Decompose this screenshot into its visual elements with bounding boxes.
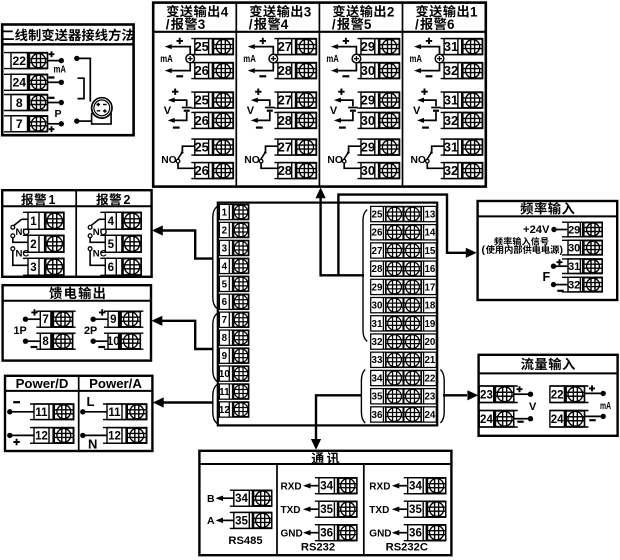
svg-text:mA: mA: [410, 54, 423, 65]
svg-text:4: 4: [281, 17, 289, 32]
svg-text:11: 11: [219, 387, 230, 398]
svg-text:8: 8: [16, 96, 23, 110]
svg-text:RS232: RS232: [301, 542, 335, 554]
svg-text:9: 9: [110, 314, 116, 326]
svg-text:3: 3: [222, 243, 228, 254]
svg-text:TXD: TXD: [281, 505, 301, 516]
svg-text:1: 1: [470, 4, 478, 19]
svg-text:25: 25: [194, 93, 208, 108]
svg-text:24: 24: [424, 410, 435, 421]
svg-text:4: 4: [222, 261, 228, 272]
svg-text:25: 25: [194, 39, 208, 54]
svg-text:35: 35: [409, 504, 422, 516]
svg-text:26: 26: [194, 113, 208, 128]
svg-text:7: 7: [42, 314, 48, 326]
svg-text:21: 21: [424, 355, 435, 366]
svg-text:23: 23: [424, 392, 435, 403]
svg-text:36: 36: [320, 528, 333, 540]
svg-text:13: 13: [424, 209, 435, 220]
svg-text:/: /: [166, 17, 170, 32]
svg-text:Power/A: Power/A: [89, 376, 142, 391]
svg-text:/: /: [415, 17, 419, 32]
svg-text:27: 27: [278, 93, 292, 108]
svg-text:GND: GND: [281, 529, 303, 540]
svg-text:22: 22: [551, 389, 564, 401]
svg-text:6: 6: [222, 297, 228, 308]
svg-text:/: /: [332, 17, 336, 32]
svg-text:35: 35: [372, 392, 383, 403]
svg-text:30: 30: [361, 63, 375, 78]
svg-text:12: 12: [219, 405, 230, 416]
svg-text:34: 34: [320, 481, 333, 493]
svg-text:28: 28: [278, 63, 292, 78]
svg-text:2: 2: [124, 193, 131, 207]
svg-text:1: 1: [30, 216, 37, 228]
svg-text:L: L: [87, 394, 95, 409]
svg-text:34: 34: [409, 481, 422, 493]
svg-text:26: 26: [194, 63, 208, 78]
svg-text:V: V: [164, 105, 172, 117]
svg-text:10: 10: [219, 369, 230, 380]
svg-text:5: 5: [222, 279, 228, 290]
svg-text:(: (: [482, 244, 486, 256]
svg-text:32: 32: [444, 163, 458, 178]
svg-text:RS485: RS485: [228, 535, 262, 547]
svg-text:mA: mA: [600, 401, 611, 412]
svg-text:27: 27: [278, 140, 292, 155]
svg-text:12: 12: [108, 430, 121, 442]
svg-text:30: 30: [372, 301, 383, 312]
svg-text:28: 28: [372, 264, 383, 275]
svg-text:31: 31: [568, 261, 580, 273]
svg-text:V: V: [330, 105, 338, 117]
svg-text:27: 27: [372, 246, 383, 257]
svg-text:18: 18: [424, 301, 435, 312]
svg-text:NO: NO: [411, 155, 426, 166]
svg-text:5: 5: [364, 17, 372, 32]
svg-text:14: 14: [424, 228, 435, 239]
svg-text:25: 25: [194, 140, 208, 155]
svg-text:NC: NC: [16, 249, 30, 260]
svg-text:24: 24: [12, 76, 26, 90]
svg-text:2: 2: [30, 239, 36, 251]
svg-text:29: 29: [361, 93, 375, 108]
svg-text:32: 32: [568, 279, 580, 291]
svg-text:35: 35: [320, 504, 333, 516]
svg-text:22: 22: [424, 373, 435, 384]
svg-text:mA: mA: [160, 54, 173, 65]
svg-text:16: 16: [424, 264, 435, 275]
svg-text:33: 33: [372, 355, 383, 366]
svg-text:26: 26: [372, 228, 383, 239]
svg-text:1: 1: [49, 193, 56, 207]
svg-text:RXD: RXD: [281, 482, 302, 493]
svg-text:32: 32: [372, 337, 383, 348]
svg-text:2P: 2P: [84, 325, 97, 337]
svg-text:+24V: +24V: [523, 224, 550, 236]
svg-text:Power/D: Power/D: [16, 376, 69, 391]
svg-text:7: 7: [16, 117, 23, 131]
svg-text:29: 29: [361, 140, 375, 155]
svg-text:V: V: [529, 401, 537, 413]
svg-text:31: 31: [444, 140, 458, 155]
svg-text:3: 3: [30, 262, 36, 274]
svg-text:8: 8: [42, 336, 49, 348]
svg-text:34: 34: [372, 373, 383, 384]
svg-text:RXD: RXD: [369, 482, 390, 493]
svg-text:6: 6: [108, 262, 114, 274]
svg-text:24: 24: [480, 414, 493, 426]
svg-text:3: 3: [198, 17, 206, 32]
svg-text:1P: 1P: [14, 325, 27, 337]
svg-text:B: B: [207, 493, 215, 505]
svg-text:GND: GND: [369, 529, 391, 540]
svg-text:36: 36: [409, 528, 422, 540]
svg-text:30: 30: [361, 163, 375, 178]
svg-text:NO: NO: [16, 227, 31, 238]
svg-text:12: 12: [35, 430, 48, 442]
svg-text:30: 30: [361, 113, 375, 128]
svg-text:4: 4: [221, 4, 229, 19]
svg-text:N: N: [88, 437, 97, 452]
svg-text:9: 9: [222, 351, 228, 362]
svg-text:5: 5: [108, 239, 115, 251]
svg-text:27: 27: [278, 39, 292, 54]
svg-text:A: A: [207, 515, 215, 527]
svg-text:3: 3: [304, 4, 312, 19]
svg-text:35: 35: [235, 515, 248, 527]
svg-text:23: 23: [480, 389, 493, 401]
svg-text:F: F: [543, 270, 551, 284]
svg-text:10: 10: [107, 336, 120, 348]
svg-text:P: P: [55, 108, 62, 120]
svg-text:31: 31: [444, 93, 458, 108]
svg-text:6: 6: [447, 17, 455, 32]
svg-text:17: 17: [424, 282, 435, 293]
svg-text:24: 24: [551, 414, 564, 426]
svg-text:7: 7: [222, 315, 228, 326]
svg-text:11: 11: [35, 407, 48, 419]
svg-text:TXD: TXD: [369, 505, 389, 516]
svg-text:mA: mA: [326, 54, 339, 65]
svg-text:mA: mA: [243, 54, 256, 65]
svg-text:NO: NO: [161, 155, 176, 166]
svg-text:NO: NO: [244, 155, 259, 166]
svg-text:NC: NC: [93, 249, 107, 260]
svg-text:11: 11: [108, 407, 121, 419]
svg-text:26: 26: [194, 163, 208, 178]
svg-text:25: 25: [372, 209, 383, 220]
svg-text:31: 31: [372, 319, 383, 330]
svg-text:29: 29: [568, 224, 580, 236]
svg-text:28: 28: [278, 113, 292, 128]
svg-text:mA: mA: [54, 64, 67, 76]
svg-text:4: 4: [108, 216, 115, 228]
svg-text:19: 19: [424, 319, 435, 330]
svg-text:V: V: [413, 105, 421, 117]
svg-text:36: 36: [372, 410, 383, 421]
svg-text:30: 30: [568, 242, 580, 254]
svg-text:29: 29: [372, 282, 383, 293]
svg-text:29: 29: [361, 39, 375, 54]
svg-text:28: 28: [278, 163, 292, 178]
svg-text:22: 22: [12, 54, 26, 68]
svg-text:34: 34: [235, 493, 248, 505]
svg-text:8: 8: [222, 333, 228, 344]
svg-text:V: V: [247, 105, 255, 117]
svg-text:31: 31: [444, 39, 458, 54]
svg-text:15: 15: [424, 246, 435, 257]
svg-text:32: 32: [444, 113, 458, 128]
svg-text:NO: NO: [93, 227, 108, 238]
svg-text:RS232C: RS232C: [386, 542, 428, 554]
svg-text:): ): [560, 244, 564, 256]
svg-text:2: 2: [387, 4, 395, 19]
svg-text:20: 20: [424, 337, 435, 348]
svg-text:2: 2: [222, 225, 228, 236]
svg-text:1: 1: [222, 207, 228, 218]
svg-text:NO: NO: [327, 155, 342, 166]
svg-text:32: 32: [444, 63, 458, 78]
svg-text:/: /: [249, 17, 253, 32]
